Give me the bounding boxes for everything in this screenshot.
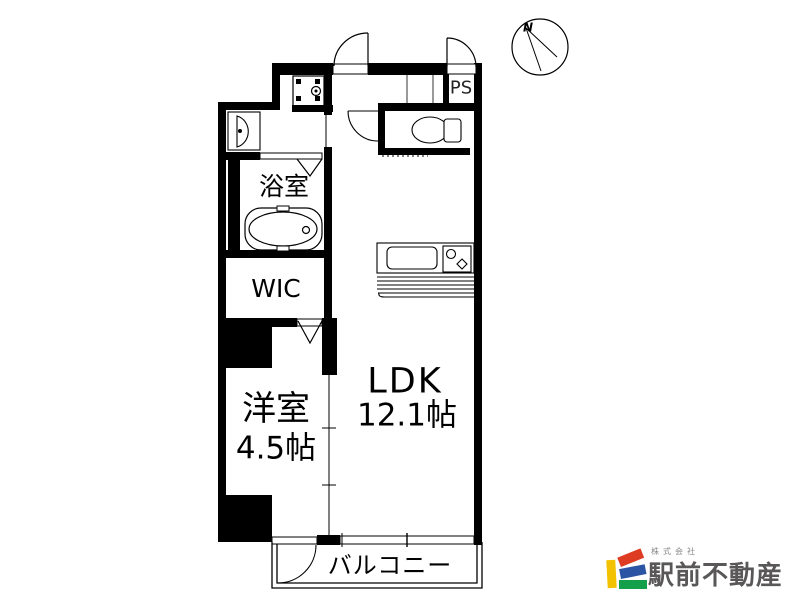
floor-plan-page: 浴室 WIC 洋室 4.5帖 LDK 12.1帖 バルコニー PS N 株式会社… <box>0 0 800 600</box>
floor-plan-drawing <box>0 0 800 600</box>
balcony-label: バルコニー <box>328 553 453 578</box>
washroom-door-opening <box>323 115 333 147</box>
genkan-step-lines <box>382 75 433 156</box>
entrance-door <box>334 33 368 66</box>
washbasin-icon <box>228 112 260 150</box>
ps-door <box>447 38 476 67</box>
toilet-door <box>348 111 378 141</box>
western-room-label: 洋室 <box>242 392 310 428</box>
bath-room-label: 浴室 <box>259 174 309 200</box>
company-logo-mark <box>606 548 647 589</box>
wic-room-label: WIC <box>251 276 301 302</box>
ldk-room-size: 12.1帖 <box>357 400 457 433</box>
compass-icon <box>512 19 568 75</box>
bathtub-icon <box>245 206 322 251</box>
company-name-label: 駅前不動産 <box>648 555 783 592</box>
pipe-space-label: PS <box>450 80 472 99</box>
walls <box>218 63 482 545</box>
toilet-icon <box>412 117 461 143</box>
kitchen-counter-icon <box>377 243 474 297</box>
balcony-door-arc <box>278 545 316 583</box>
washing-machine-pan-icon <box>293 76 324 106</box>
ldk-window <box>340 533 474 547</box>
compass-north-label: N <box>523 22 533 35</box>
western-room-size: 4.5帖 <box>236 433 316 466</box>
ldk-room-label: LDK <box>367 364 442 401</box>
sliding-partition <box>322 375 336 537</box>
